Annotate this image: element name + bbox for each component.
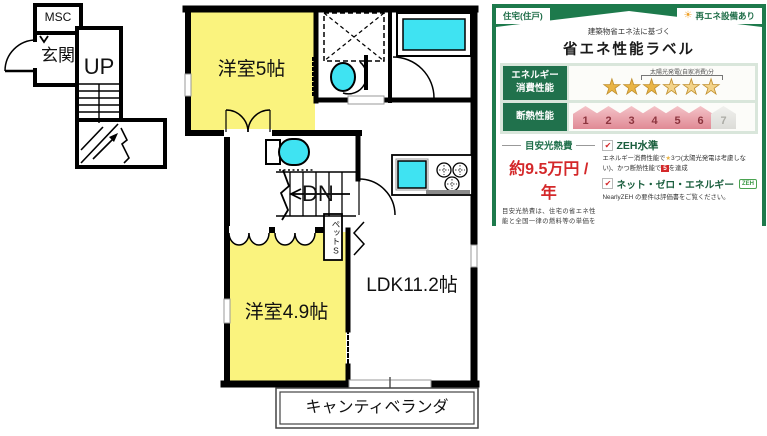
cost-value: 約9.5万円 / 年: [502, 155, 595, 203]
zeh-desc-part3: を達成: [669, 165, 688, 172]
screenshot-root: MSC 玄関 UP 洋室5帖 DN ペットS 洋室4.9帖 LDK11.2帖 キ…: [0, 0, 767, 436]
solar-bracket: [641, 75, 723, 80]
door-arc-icon: [359, 179, 395, 215]
dash-line: [576, 145, 595, 146]
zeh-level-label: ZEH水準: [616, 138, 658, 153]
sun-icon: ☀: [684, 11, 693, 21]
insulation-level-5: 5: [665, 106, 690, 129]
insulation-level-2: 2: [596, 106, 621, 129]
zeh-level-row: ✔ ZEH水準: [602, 138, 757, 153]
zeh-badge-icon: ZEH: [739, 179, 757, 189]
zeh-section: ✔ ZEH水準 エネルギー消費性能で★3つ(太陽光発電は考慮しない)、かつ断熱性…: [595, 138, 757, 226]
insulation-row: 断熱性能 1 2 3 4 5 6 7: [503, 103, 755, 131]
ldk-label: LDK11.2帖: [352, 276, 472, 297]
kitchen-sink-icon: [398, 161, 426, 188]
energy-row-label: エネルギー 消費性能: [503, 66, 567, 100]
entrance-label: 玄関: [35, 47, 81, 66]
insulation-row-label: 断熱性能: [503, 103, 567, 131]
room-a-label: 洋室5帖: [188, 60, 315, 81]
room-b-label: 洋室4.9帖: [227, 303, 346, 324]
energy-row-label-line1: エネルギー: [511, 70, 559, 83]
entrance-block: [5, 5, 165, 167]
energy-row: エネルギー 消費性能 太陽光発電(自家消費)分 ★★★★★★: [503, 66, 755, 100]
veranda-label: キャンティベランダ: [276, 399, 478, 417]
star-icon: ★: [622, 76, 642, 99]
zeh-description: エネルギー消費性能で★3つ(太陽光発電は考慮しない)、かつ断熱性能で5を達成: [602, 154, 757, 174]
housing-type-badge: 住宅(住戸): [496, 8, 550, 24]
energy-performance-label: 住宅(住戸) ☀ 再エネ設備あり 建築物省エネ法に基づく 省エネ性能ラベル エネ…: [492, 4, 766, 226]
sliding-door-icon: [348, 96, 384, 104]
zeh-desc-part1: エネルギー消費性能で: [602, 155, 665, 162]
washbasin-icon: [266, 140, 280, 164]
stair-turn-box: [77, 120, 165, 167]
dn-label: DN: [302, 182, 358, 206]
accordion-door-icon: [354, 222, 364, 255]
cost-section: 目安光熱費 約9.5万円 / 年 目安光熱費は、住宅の省エネ性能と全国一律の燃料…: [502, 138, 595, 226]
star-rating: ★★★★★★: [573, 77, 751, 98]
renewable-badge: ☀ 再エネ設備あり: [677, 8, 762, 24]
cost-note: 目安光熱費は、住宅の省エネ性能と全国一律の燃料等の単価を用いて算出したものです。…: [502, 207, 595, 226]
dash-line: [502, 145, 521, 146]
nze-row: ✔ ネット・ゼロ・エネルギー ZEH: [602, 177, 757, 191]
renewable-text: 再エネ設備あり: [695, 10, 755, 22]
check-icon: ✔: [602, 140, 613, 151]
cost-heading-row: 目安光熱費: [502, 138, 595, 152]
cost-heading: 目安光熱費: [525, 138, 573, 152]
nearly-zeh-note: NearlyZEH の要件は評価書をご覧ください。: [602, 192, 757, 201]
pet-storage-label: ペットS: [327, 217, 340, 259]
insulation-scale: 1 2 3 4 5 6 7: [569, 103, 755, 131]
nze-label: ネット・ゼロ・エネルギー: [616, 177, 734, 191]
insulation-level-7: 7: [711, 106, 736, 129]
insulation-level-4: 4: [642, 106, 667, 129]
insulation-level-6: 6: [688, 106, 713, 129]
insulation-level-1: 1: [573, 106, 598, 129]
label-header: 住宅(住戸) ☀ 再エネ設備あり: [495, 7, 763, 25]
check-icon: ✔: [602, 178, 613, 189]
law-note: 建築物省エネ法に基づく: [496, 26, 762, 37]
stars-body: 太陽光発電(自家消費)分 ★★★★★★: [569, 66, 755, 100]
label-title: 省エネ性能ラベル: [496, 38, 762, 59]
ratings-panel: エネルギー 消費性能 太陽光発電(自家消費)分 ★★★★★★ 断熱性能: [500, 63, 758, 134]
energy-row-label-line2: 消費性能: [516, 83, 554, 96]
bath-door-arc-icon: [393, 57, 434, 98]
insulation-label-text: 断熱性能: [516, 111, 554, 124]
label-house-panel: 建築物省エネ法に基づく 省エネ性能ラベル エネルギー 消費性能 太陽光発電(自家…: [496, 11, 762, 134]
housing-type-text: 住宅(住戸): [503, 10, 543, 22]
window-icon: [471, 245, 477, 267]
insulation-level-3: 3: [619, 106, 644, 129]
up-label: UP: [77, 55, 121, 79]
msc-label: MSC: [35, 11, 81, 24]
star-icon: ★: [603, 76, 623, 99]
stair-break-icon: [281, 170, 289, 220]
toilet-icon: [331, 63, 355, 91]
label-details: 目安光熱費 約9.5万円 / 年 目安光熱費は、住宅の省エネ性能と全国一律の燃料…: [496, 134, 762, 226]
zeh-insulation-number: 5: [661, 165, 669, 172]
